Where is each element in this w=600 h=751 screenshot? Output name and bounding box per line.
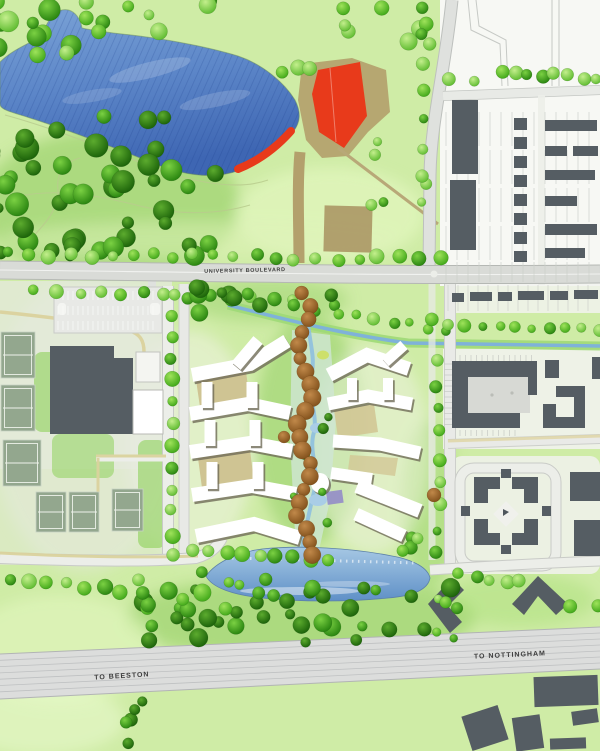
residential-block bbox=[545, 248, 585, 258]
tree bbox=[342, 599, 359, 616]
tree bbox=[112, 170, 135, 193]
tan-square bbox=[323, 205, 372, 252]
tree bbox=[416, 28, 428, 40]
tree bbox=[432, 628, 441, 637]
residential-block bbox=[545, 224, 597, 235]
tree bbox=[191, 304, 208, 321]
tree bbox=[373, 137, 382, 146]
tree bbox=[369, 249, 384, 264]
tree bbox=[293, 617, 310, 634]
tree bbox=[3, 247, 13, 257]
tree bbox=[202, 545, 214, 557]
residential-block bbox=[545, 170, 595, 180]
tree bbox=[65, 247, 78, 260]
residential-block bbox=[514, 175, 527, 187]
tree bbox=[181, 179, 196, 194]
tree bbox=[95, 286, 107, 298]
tree bbox=[132, 574, 144, 586]
tree bbox=[304, 580, 320, 596]
tree bbox=[423, 38, 436, 51]
tree bbox=[196, 566, 208, 578]
tree bbox=[417, 84, 430, 97]
tree bbox=[302, 61, 316, 75]
tree bbox=[167, 417, 180, 430]
tree bbox=[228, 618, 245, 635]
tree bbox=[59, 45, 74, 60]
tree bbox=[425, 313, 438, 326]
tree bbox=[433, 424, 445, 436]
tree bbox=[137, 697, 147, 707]
tree bbox=[21, 574, 36, 589]
school-wing-b bbox=[543, 404, 556, 428]
terrace-block bbox=[498, 292, 512, 301]
tree bbox=[221, 546, 235, 560]
industrial-block bbox=[533, 675, 598, 707]
tree bbox=[339, 20, 351, 32]
tree bbox=[29, 47, 45, 63]
tree bbox=[379, 197, 389, 207]
tree bbox=[435, 477, 446, 488]
tree bbox=[166, 462, 179, 475]
tree bbox=[112, 585, 127, 600]
tree bbox=[79, 11, 93, 25]
tree bbox=[416, 170, 429, 183]
tree bbox=[251, 248, 264, 261]
tree bbox=[73, 184, 94, 205]
tree bbox=[84, 134, 108, 158]
tree bbox=[122, 217, 134, 229]
tree bbox=[76, 289, 86, 299]
tree bbox=[176, 593, 189, 606]
site-plan-page: UNIVERSITY BOULEVARD TO BEESTON TO NOTTI… bbox=[0, 0, 600, 751]
tree bbox=[440, 596, 452, 608]
tree bbox=[165, 528, 181, 544]
residential-block bbox=[514, 213, 527, 225]
tree bbox=[91, 24, 106, 39]
east-block-a bbox=[570, 472, 600, 501]
tree bbox=[22, 248, 35, 261]
tree bbox=[318, 488, 326, 496]
tree bbox=[167, 331, 179, 343]
residential-block bbox=[514, 137, 527, 149]
residential-block bbox=[514, 118, 527, 130]
tree bbox=[5, 574, 16, 585]
tree bbox=[5, 193, 29, 217]
tree bbox=[219, 602, 232, 615]
tree bbox=[419, 114, 428, 123]
tree bbox=[161, 159, 183, 181]
tree bbox=[235, 580, 245, 590]
tree bbox=[314, 614, 332, 632]
tree bbox=[150, 23, 167, 40]
tree bbox=[318, 423, 329, 434]
tree bbox=[417, 198, 426, 207]
residential-block bbox=[514, 156, 527, 168]
tree bbox=[577, 323, 587, 333]
tree bbox=[234, 546, 250, 562]
tree bbox=[139, 111, 157, 129]
tree bbox=[199, 609, 217, 627]
residential-block bbox=[514, 232, 527, 244]
tree bbox=[165, 504, 176, 515]
tree bbox=[41, 250, 56, 265]
tree bbox=[257, 610, 270, 623]
causeway-path bbox=[298, 152, 300, 263]
tree bbox=[267, 292, 281, 306]
tree bbox=[416, 57, 430, 71]
white-building bbox=[328, 396, 412, 404]
tree bbox=[591, 74, 600, 84]
tree bbox=[301, 637, 311, 647]
tree bbox=[458, 319, 472, 333]
tree bbox=[186, 544, 199, 557]
terrace-block bbox=[550, 291, 568, 300]
tree bbox=[122, 1, 134, 13]
ne-vertical-street bbox=[538, 95, 545, 285]
tree bbox=[97, 579, 113, 595]
tree bbox=[148, 247, 160, 259]
tree bbox=[452, 568, 463, 579]
tree bbox=[38, 0, 60, 21]
tree bbox=[141, 632, 157, 648]
tree bbox=[323, 518, 332, 527]
tree bbox=[208, 249, 218, 259]
sports-hall bbox=[50, 346, 133, 434]
tree bbox=[451, 602, 463, 614]
residential-block bbox=[573, 146, 598, 156]
tree bbox=[369, 149, 381, 161]
tree bbox=[27, 17, 39, 29]
tree bbox=[371, 585, 381, 595]
tree bbox=[417, 622, 431, 636]
tree bbox=[405, 318, 413, 326]
tree bbox=[49, 284, 64, 299]
tree bbox=[165, 438, 180, 453]
tree bbox=[136, 586, 149, 599]
terrace-block bbox=[470, 292, 492, 301]
tree bbox=[270, 252, 283, 265]
terrace-block bbox=[574, 290, 598, 299]
tree bbox=[578, 72, 591, 85]
tree bbox=[26, 160, 41, 175]
tree bbox=[224, 577, 234, 587]
tree bbox=[255, 550, 267, 562]
brown-tree bbox=[304, 546, 321, 563]
tree bbox=[108, 251, 118, 261]
industrial-block bbox=[512, 714, 544, 751]
tree bbox=[148, 174, 161, 187]
tree bbox=[431, 354, 443, 366]
tree bbox=[322, 554, 334, 566]
tree bbox=[496, 65, 510, 79]
tree bbox=[217, 288, 227, 298]
brown-tree bbox=[278, 431, 290, 443]
brown-tree bbox=[298, 521, 315, 538]
tree bbox=[128, 250, 139, 261]
tree bbox=[405, 590, 418, 603]
terrace-block bbox=[452, 293, 464, 302]
tree bbox=[560, 322, 570, 332]
tree bbox=[358, 582, 371, 595]
tree bbox=[267, 548, 282, 563]
tree bbox=[160, 582, 178, 600]
residential-block bbox=[514, 251, 527, 262]
tree bbox=[484, 575, 495, 586]
residential-block bbox=[450, 180, 476, 250]
tree bbox=[367, 312, 380, 325]
tree bbox=[97, 109, 112, 124]
sports-annex bbox=[133, 390, 163, 434]
tree bbox=[355, 255, 365, 265]
tree bbox=[434, 403, 444, 413]
tree bbox=[259, 573, 272, 586]
sports-outbuilding bbox=[136, 352, 160, 382]
tree bbox=[389, 318, 400, 329]
tree bbox=[433, 527, 442, 536]
tree bbox=[53, 156, 72, 175]
tree bbox=[561, 68, 574, 81]
tree bbox=[337, 2, 350, 15]
tree bbox=[189, 280, 205, 296]
tree bbox=[333, 254, 346, 267]
brown-tree bbox=[301, 312, 316, 327]
tree bbox=[138, 286, 150, 298]
tree bbox=[169, 289, 181, 301]
tree bbox=[357, 621, 367, 631]
residential-block bbox=[545, 146, 567, 156]
tree bbox=[393, 249, 407, 263]
tree bbox=[226, 290, 242, 306]
tree bbox=[285, 609, 295, 619]
tree bbox=[138, 154, 160, 176]
tree bbox=[442, 319, 453, 330]
tree bbox=[27, 27, 47, 47]
junction-island bbox=[431, 271, 438, 278]
tree bbox=[509, 66, 523, 80]
residential-block bbox=[545, 196, 577, 206]
tree bbox=[442, 72, 456, 86]
tree bbox=[429, 546, 442, 559]
tree bbox=[397, 545, 409, 557]
east-block-b bbox=[574, 520, 600, 556]
tree bbox=[252, 587, 265, 600]
tree bbox=[276, 66, 288, 78]
tree bbox=[61, 577, 72, 588]
tree bbox=[0, 11, 19, 32]
tree bbox=[242, 288, 254, 300]
tree bbox=[544, 322, 556, 334]
tree bbox=[114, 289, 127, 302]
tree bbox=[186, 248, 198, 260]
tree bbox=[166, 310, 178, 322]
tree bbox=[77, 581, 91, 595]
tree bbox=[374, 1, 389, 16]
tree bbox=[167, 485, 178, 496]
tree bbox=[85, 250, 99, 264]
tree bbox=[279, 593, 294, 608]
tree bbox=[165, 353, 177, 365]
tree bbox=[168, 396, 178, 406]
tree bbox=[325, 289, 338, 302]
tree bbox=[267, 589, 279, 601]
tree bbox=[252, 297, 267, 312]
tree bbox=[13, 217, 34, 238]
tree bbox=[28, 285, 38, 295]
brown-tree bbox=[427, 488, 441, 502]
tree bbox=[352, 310, 361, 319]
tree bbox=[334, 309, 344, 319]
purple-garden bbox=[326, 490, 344, 505]
tree bbox=[287, 254, 299, 266]
brown-tree bbox=[295, 286, 309, 300]
tree bbox=[521, 69, 532, 80]
tree bbox=[167, 548, 180, 561]
tree bbox=[496, 322, 505, 331]
tree bbox=[165, 371, 181, 387]
tree bbox=[144, 10, 154, 20]
tree bbox=[189, 628, 208, 647]
tree bbox=[418, 144, 429, 155]
tree bbox=[433, 454, 447, 468]
tree bbox=[411, 251, 426, 266]
tree bbox=[285, 550, 299, 564]
site-plan-map: UNIVERSITY BOULEVARD TO BEESTON TO NOTTI… bbox=[0, 0, 600, 751]
tree bbox=[110, 146, 131, 167]
tree bbox=[512, 574, 525, 587]
tree bbox=[288, 299, 300, 311]
industrial-block bbox=[550, 737, 586, 749]
tree bbox=[416, 2, 428, 14]
tree bbox=[350, 634, 362, 646]
tree bbox=[120, 716, 132, 728]
residential-block bbox=[545, 120, 597, 131]
tree bbox=[157, 288, 170, 301]
tree bbox=[16, 129, 35, 148]
tree bbox=[509, 321, 520, 332]
tree bbox=[159, 217, 172, 230]
tree bbox=[563, 600, 577, 614]
residential-block bbox=[452, 100, 478, 174]
tree bbox=[429, 380, 442, 393]
terrace-block bbox=[518, 291, 544, 300]
tree bbox=[366, 199, 378, 211]
tree bbox=[547, 67, 560, 80]
brown-tree bbox=[290, 337, 307, 354]
tree bbox=[441, 578, 460, 597]
tree bbox=[129, 704, 140, 715]
tree bbox=[167, 252, 178, 263]
tree bbox=[450, 634, 458, 642]
tree bbox=[479, 322, 488, 331]
white-building bbox=[331, 473, 372, 479]
tree bbox=[157, 111, 171, 125]
tree bbox=[434, 250, 449, 265]
tree bbox=[39, 576, 52, 589]
tree bbox=[228, 251, 238, 261]
school-wing-a bbox=[545, 360, 559, 378]
tree bbox=[382, 622, 398, 638]
tree bbox=[146, 620, 158, 632]
tree bbox=[471, 571, 484, 584]
tree bbox=[324, 413, 332, 421]
yellow-green-lawn bbox=[317, 351, 329, 360]
tree bbox=[400, 33, 418, 51]
tree bbox=[207, 165, 224, 182]
residential-block bbox=[514, 194, 527, 206]
brown-tree bbox=[301, 468, 318, 485]
tree bbox=[123, 738, 134, 749]
tree bbox=[193, 584, 211, 602]
tree bbox=[309, 253, 321, 265]
school-courtyard bbox=[468, 377, 530, 413]
tree bbox=[412, 533, 423, 544]
tree bbox=[48, 122, 65, 139]
tree bbox=[528, 325, 536, 333]
tree bbox=[469, 76, 479, 86]
